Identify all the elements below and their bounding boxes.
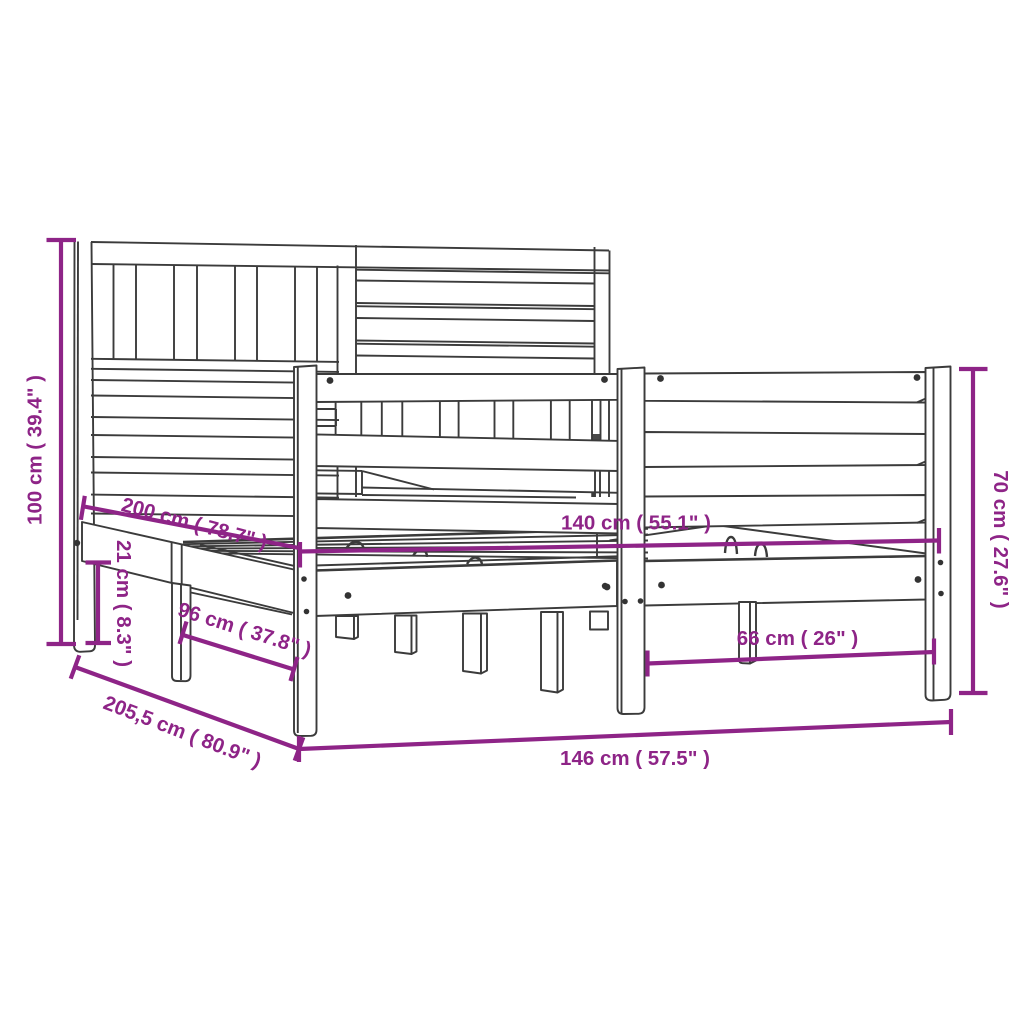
svg-text:70 cm ( 27.6" ): 70 cm ( 27.6" ) — [989, 470, 1012, 609]
svg-text:146 cm ( 57.5" ): 146 cm ( 57.5" ) — [560, 747, 710, 770]
svg-text:21 cm ( 8.3" ): 21 cm ( 8.3" ) — [112, 540, 135, 667]
svg-text:140 cm ( 55.1" ): 140 cm ( 55.1" ) — [561, 512, 711, 535]
svg-text:66 cm ( 26" ): 66 cm ( 26" ) — [737, 627, 858, 650]
svg-text:100 cm ( 39.4" ): 100 cm ( 39.4" ) — [24, 375, 47, 525]
